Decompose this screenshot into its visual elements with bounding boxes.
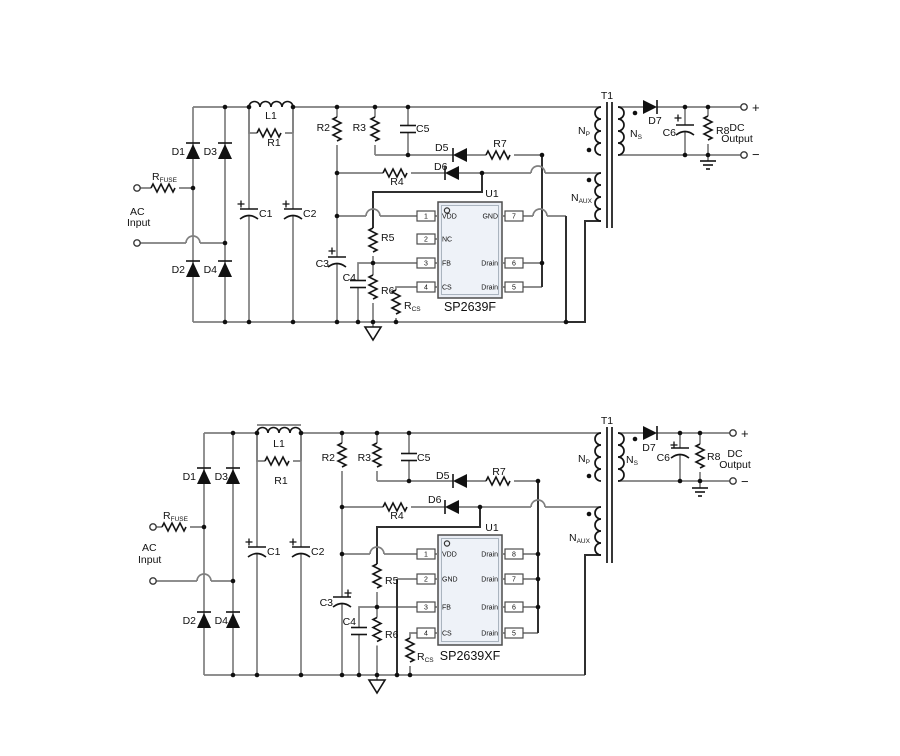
ic-ref-label: U1 (485, 522, 499, 534)
diode-d7 (643, 426, 657, 440)
c4-label: C4 (343, 616, 357, 628)
ns-label: NS (626, 454, 639, 467)
polarity-plus-c6 (675, 115, 682, 122)
dc-minus-label: − (741, 474, 749, 489)
pin-name: VDD (442, 214, 457, 221)
resistor-r2 (338, 443, 346, 467)
capacitor-c4 (351, 628, 367, 635)
transformer-t1 (595, 102, 624, 228)
pin-number: 3 (424, 261, 428, 268)
dc-terminal-minus (730, 478, 736, 484)
d4-label: D4 (204, 264, 218, 276)
schematic-page: 1 2 3 4 7 6 5 VDD NC FB CS GND Drain Dra… (0, 0, 900, 751)
c2-label: C2 (311, 546, 325, 558)
c1-label: C1 (267, 546, 281, 558)
ic-part-label: SP2639XF (440, 649, 501, 663)
winding-primary (595, 107, 601, 155)
pin-number: 5 (512, 285, 516, 292)
pin-number: 8 (512, 552, 516, 559)
resistor-r6 (373, 618, 381, 642)
resistor-r1 (265, 457, 289, 465)
pin-name: CS (442, 285, 452, 292)
dc-output-label: Output (721, 133, 753, 145)
resistor-rcs (406, 638, 414, 662)
r6-label: R6 (385, 629, 399, 641)
diode-d5 (453, 148, 467, 162)
rfuse-label: RFUSE (152, 171, 178, 184)
ground-triangle-icon (365, 327, 381, 340)
dc-minus-label: − (752, 147, 760, 162)
pin-name: Drain (481, 631, 498, 638)
polarity-plus-c2 (290, 539, 297, 546)
diode-d3 (218, 143, 232, 159)
resistor-r1 (257, 129, 281, 137)
transformer-core (607, 102, 612, 228)
dc-terminal-minus (741, 152, 747, 158)
d5-label: D5 (436, 470, 450, 482)
polarity-plus-c1 (246, 539, 253, 546)
diode-d2 (186, 261, 200, 277)
d1-label: D1 (183, 471, 197, 483)
aux-return (566, 221, 601, 322)
pin-name: GND (482, 214, 498, 221)
r3-label: R3 (358, 452, 372, 464)
c5-label: C5 (417, 452, 431, 464)
winding-aux (595, 507, 601, 555)
aux-return (585, 555, 601, 675)
polarity-plus-c1 (238, 201, 245, 208)
dc-terminal-plus (730, 430, 736, 436)
pin-name: CS (442, 631, 452, 638)
ground-triangle-icon (369, 680, 385, 693)
polarity-plus-c3 (329, 248, 336, 255)
rcs-label: RCS (404, 300, 421, 313)
rfuse-label: RFUSE (163, 510, 189, 523)
transformer-t1 (595, 427, 624, 563)
c3-label: C3 (320, 597, 334, 609)
r2-label: R2 (322, 452, 336, 464)
pin-number: 7 (512, 214, 516, 221)
drain-pin-leads (523, 263, 542, 287)
pin-number: 5 (512, 631, 516, 638)
l1-label: L1 (273, 438, 285, 450)
ac-input-label: Input (138, 554, 161, 566)
c5-label: C5 (416, 123, 430, 135)
pin-number: 2 (424, 577, 428, 584)
resistor-r7 (486, 477, 510, 485)
d7-label: D7 (648, 115, 662, 127)
schematic-canvas: 1 2 3 4 7 6 5 VDD NC FB CS GND Drain Dra… (0, 0, 900, 751)
d3-label: D3 (215, 471, 229, 483)
diode-d1 (186, 143, 200, 159)
resistor-r6 (369, 275, 377, 299)
drain-pin-leads (523, 554, 538, 633)
resistor-r7 (486, 151, 510, 159)
r4-label: R4 (390, 510, 404, 522)
ic-ref-label: U1 (485, 188, 499, 200)
ic-u1-sp2639f: 1 2 3 4 7 6 5 VDD NC FB CS GND Drain Dra… (417, 188, 523, 314)
ac-terminal-live (150, 524, 156, 530)
d1-label: D1 (172, 146, 186, 158)
winding-secondary (618, 433, 624, 481)
diode-d4 (218, 261, 232, 277)
dc-plus-label: + (741, 426, 749, 441)
phase-dot-secondary (633, 111, 638, 116)
diode-d7 (643, 100, 657, 114)
ac-input-label: Input (127, 217, 150, 229)
naux-label: NAUX (571, 192, 593, 205)
d3-label: D3 (204, 146, 218, 158)
np-label: NP (578, 125, 590, 138)
c1-label: C1 (259, 208, 273, 220)
diode-d2 (197, 612, 211, 628)
r5-label: R5 (381, 232, 395, 244)
pin-name: NC (442, 237, 452, 244)
pin-number: 1 (424, 214, 428, 221)
ac-terminal-neutral (150, 578, 156, 584)
phase-dot-aux (587, 512, 592, 517)
pin-name: VDD (442, 552, 457, 559)
circuit-sp2639f: 1 2 3 4 7 6 5 VDD NC FB CS GND Drain Dra… (127, 90, 760, 340)
pin-number: 4 (424, 285, 428, 292)
pin-number: 7 (512, 577, 516, 584)
d6-label: D6 (428, 494, 442, 506)
r7-label: R7 (493, 138, 507, 150)
r5-label: R5 (385, 575, 399, 587)
ac-terminal-neutral (134, 240, 140, 246)
t1-label: T1 (601, 90, 613, 102)
pin-number: 6 (512, 605, 516, 612)
pin-name: FB (442, 605, 451, 612)
transformer-core (607, 427, 612, 563)
pin-name: Drain (481, 552, 498, 559)
r3-label: R3 (353, 122, 367, 134)
resistor-rfuse (151, 184, 175, 192)
pin-name: GND (442, 577, 458, 584)
phase-dot-primary (587, 474, 592, 479)
pin-number: 4 (424, 631, 428, 638)
resistor-r8 (696, 444, 704, 468)
d5-label: D5 (435, 142, 449, 154)
inductor-l1 (257, 428, 301, 434)
resistor-r5 (373, 564, 381, 588)
diode-d3 (226, 468, 240, 484)
c6-label: C6 (663, 127, 677, 139)
phase-dot-primary (587, 148, 592, 153)
winding-secondary (618, 107, 624, 155)
ns-label: NS (630, 128, 643, 141)
pin-number: 1 (424, 552, 428, 559)
ic-part-label: SP2639F (444, 300, 496, 314)
pin-name: Drain (481, 285, 498, 292)
pin-name: Drain (481, 605, 498, 612)
dc-output-label: Output (719, 459, 751, 471)
d7-label: D7 (642, 442, 656, 454)
diode-d4 (226, 612, 240, 628)
c4-label: C4 (343, 272, 357, 284)
polarity-plus-c3 (345, 590, 352, 597)
earth-ground-icon (700, 161, 716, 169)
ac-terminal-live (134, 185, 140, 191)
r7-label: R7 (492, 466, 506, 478)
wire-hop (533, 209, 547, 216)
pin-number: 2 (424, 237, 428, 244)
diode-d5 (453, 474, 467, 488)
ic-u1-sp2639xf: 1 2 3 4 8 7 6 5 VDD GND FB CS Drain Drai… (417, 522, 523, 663)
resistor-r2 (333, 117, 341, 141)
rcs-label: RCS (417, 651, 434, 664)
d4-label: D4 (215, 615, 229, 627)
diode-d6 (445, 500, 459, 514)
dc-terminal-plus (741, 104, 747, 110)
d2-label: D2 (172, 264, 186, 276)
resistor-r8 (704, 116, 712, 140)
pin-name: Drain (481, 261, 498, 268)
l1-label: L1 (265, 110, 277, 122)
pin-number: 6 (512, 261, 516, 268)
capacitor-c5 (400, 126, 416, 133)
inductor-l1 (249, 102, 293, 108)
phase-dot-secondary (633, 437, 638, 442)
earth-ground-icon (692, 488, 708, 496)
d2-label: D2 (183, 615, 197, 627)
resistor-rfuse (162, 523, 186, 531)
pin-name: Drain (481, 577, 498, 584)
r2-label: R2 (317, 122, 331, 134)
resistor-r3 (371, 117, 379, 141)
capacitor-c5 (401, 454, 417, 461)
diode-d1 (197, 468, 211, 484)
polarity-plus-c2 (283, 201, 290, 208)
bridge-columns (204, 433, 233, 675)
bridge-columns (193, 107, 225, 322)
resistor-r5 (369, 228, 377, 252)
t1-label: T1 (601, 415, 613, 427)
r1-label: R1 (274, 475, 288, 487)
naux-label: NAUX (569, 532, 591, 545)
pin-number: 3 (424, 605, 428, 612)
winding-primary (595, 433, 601, 481)
c2-label: C2 (303, 208, 317, 220)
phase-dot-aux (587, 178, 592, 183)
ac-label: AC (142, 542, 157, 554)
winding-aux (595, 173, 601, 221)
c3-label: C3 (316, 258, 330, 270)
circuit-sp2639xf: 1 2 3 4 8 7 6 5 VDD GND FB CS Drain Drai… (138, 415, 751, 693)
c6-label: C6 (657, 452, 671, 464)
pin-name: FB (442, 261, 451, 268)
dc-plus-label: + (752, 100, 760, 115)
resistor-r3 (373, 443, 381, 467)
r6-label: R6 (381, 285, 395, 297)
np-label: NP (578, 453, 590, 466)
d6-label: D6 (434, 161, 448, 173)
r1-label: R1 (267, 137, 281, 149)
r4-label: R4 (390, 176, 404, 188)
